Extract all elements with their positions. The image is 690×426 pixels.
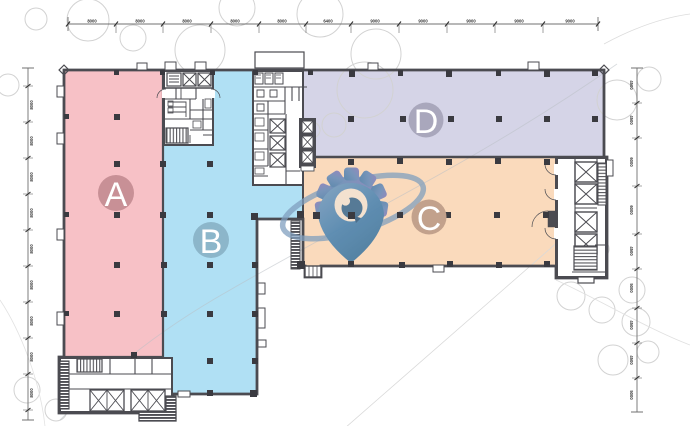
svg-text:8000: 8000 xyxy=(182,19,192,24)
svg-text:8000: 8000 xyxy=(135,19,145,24)
svg-text:8000: 8000 xyxy=(29,172,34,182)
svg-text:D: D xyxy=(414,103,439,141)
svg-text:9000: 9000 xyxy=(514,19,524,24)
svg-text:8000: 8000 xyxy=(87,19,97,24)
svg-text:4500: 4500 xyxy=(629,355,634,365)
svg-text:8000: 8000 xyxy=(29,352,34,362)
svg-text:8000: 8000 xyxy=(29,208,34,218)
svg-text:4500: 4500 xyxy=(629,80,634,90)
svg-text:8000: 8000 xyxy=(230,19,240,24)
svg-text:4500: 4500 xyxy=(629,246,634,256)
svg-text:B: B xyxy=(200,223,223,261)
svg-text:9000: 9000 xyxy=(565,19,575,24)
svg-text:8000: 8000 xyxy=(29,244,34,254)
svg-text:8000: 8000 xyxy=(29,100,34,110)
svg-text:C: C xyxy=(417,200,442,238)
svg-text:6400: 6400 xyxy=(323,19,333,24)
svg-text:8000: 8000 xyxy=(29,316,34,326)
svg-text:4500: 4500 xyxy=(629,115,634,125)
svg-text:8000: 8000 xyxy=(277,19,287,24)
svg-text:9000: 9000 xyxy=(418,19,428,24)
svg-text:8000: 8000 xyxy=(29,388,34,398)
svg-text:8000: 8000 xyxy=(29,280,34,290)
svg-text:4500: 4500 xyxy=(629,320,634,330)
svg-text:6000: 6000 xyxy=(629,157,634,167)
svg-text:9000: 9000 xyxy=(466,19,476,24)
svg-text:6000: 6000 xyxy=(629,205,634,215)
svg-text:9000: 9000 xyxy=(370,19,380,24)
svg-text:5000: 5000 xyxy=(629,390,634,400)
svg-text:8000: 8000 xyxy=(29,136,34,146)
svg-text:5000: 5000 xyxy=(629,283,634,293)
svg-text:A: A xyxy=(105,176,128,214)
